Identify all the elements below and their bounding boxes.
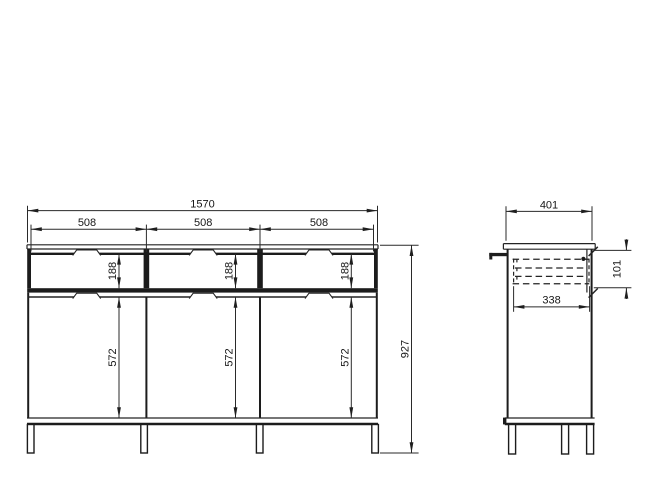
drawer-handle-notch-1 [73,250,101,256]
side-handle-profile [489,253,507,260]
dim-total-height: 927 [380,245,419,453]
front-leg-4 [372,425,379,454]
side-body [503,249,595,424]
left-side-panel [27,249,31,288]
side-leg-2 [562,425,569,455]
door-handle-notch-2 [189,293,217,298]
side-drawer-hidden-outline [513,247,598,298]
dim-label-total-width: 1570 [190,199,214,211]
front-door-row [28,293,377,418]
front-legs [27,425,378,454]
dim-label-total-height: 927 [400,340,412,358]
door-handle-notch-1 [73,293,101,298]
dim-label-drawer-3: 188 [340,262,352,280]
dim-label-door-1: 572 [107,348,119,366]
dim-label-total-depth: 401 [540,199,558,211]
side-leg-3 [587,425,594,455]
dim-label-drawer-box-height: 101 [611,260,623,278]
dim-label-door-2: 572 [224,348,236,366]
door-handle-notch-3 [305,293,333,298]
drawer-handle-notch-3 [305,250,333,256]
dim-drawer-box-height: 101 [594,239,632,299]
drawing-canvas: 1570 508 508 508 188 188 188 [0,0,650,488]
right-side-panel [374,249,378,288]
drawer-handle-notch-2 [189,250,217,256]
side-view: 401 101 338 [489,199,631,454]
dim-total-depth: 401 [506,199,592,240]
slide-tick-top [589,247,598,256]
front-leg-3 [256,425,263,454]
corner-fitting-mark [503,418,506,425]
dim-drawer-depth: 338 [514,286,590,312]
dim-label-section-1: 508 [78,217,96,229]
side-leg-1 [509,425,516,455]
mid-divider-board [27,288,378,292]
dim-label-section-2: 508 [194,217,212,229]
front-drawer-row [27,249,378,293]
front-view: 1570 508 508 508 188 188 188 [27,199,419,453]
dim-door-heights: 572 572 572 [107,297,351,418]
dim-label-drawer-1: 188 [107,262,119,280]
fixing-dot [581,257,585,261]
dim-label-drawer-2: 188 [224,262,236,280]
front-leg-2 [141,425,148,454]
dim-label-section-3: 508 [310,217,328,229]
dim-label-drawer-depth: 338 [542,295,560,307]
front-bottom-board [27,418,378,424]
dim-label-door-3: 572 [340,348,352,366]
technical-drawing-page: 1570 508 508 508 188 188 188 [0,0,650,488]
front-top-board [27,245,378,249]
front-leg-1 [27,425,34,454]
side-legs [509,425,594,455]
side-top-board [503,244,595,250]
dim-section-widths: 508 508 508 [31,217,374,252]
